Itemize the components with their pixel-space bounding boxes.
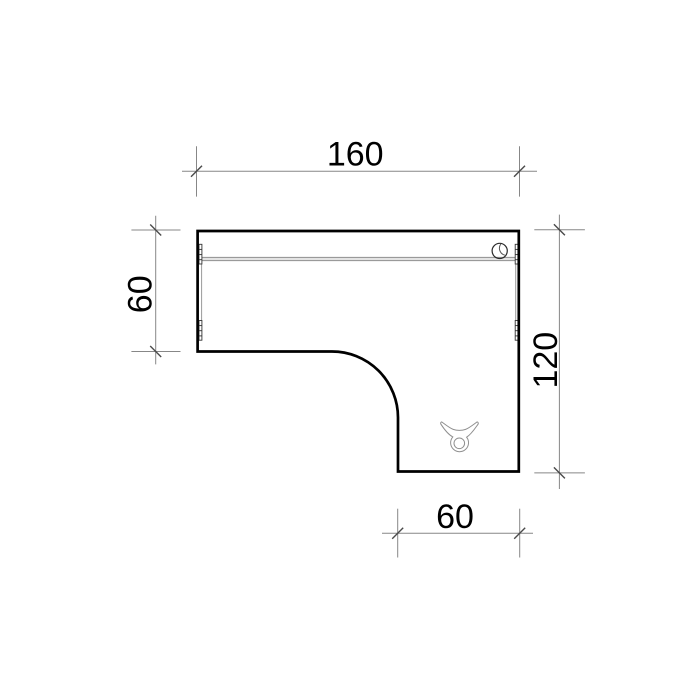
svg-text:120: 120 — [527, 332, 565, 389]
svg-text:160: 160 — [327, 136, 384, 174]
svg-text:60: 60 — [436, 498, 474, 536]
svg-text:60: 60 — [122, 275, 160, 313]
